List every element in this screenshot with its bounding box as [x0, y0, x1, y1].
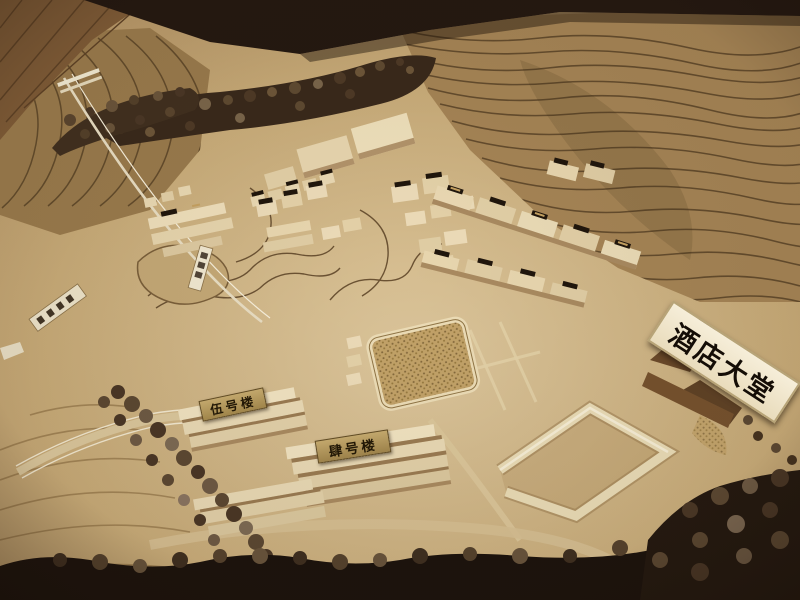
scene-canvas: [0, 0, 800, 600]
model-photo: 酒店大堂 伍号楼 肆号楼: [0, 0, 800, 600]
photo-vignette: [0, 0, 800, 600]
